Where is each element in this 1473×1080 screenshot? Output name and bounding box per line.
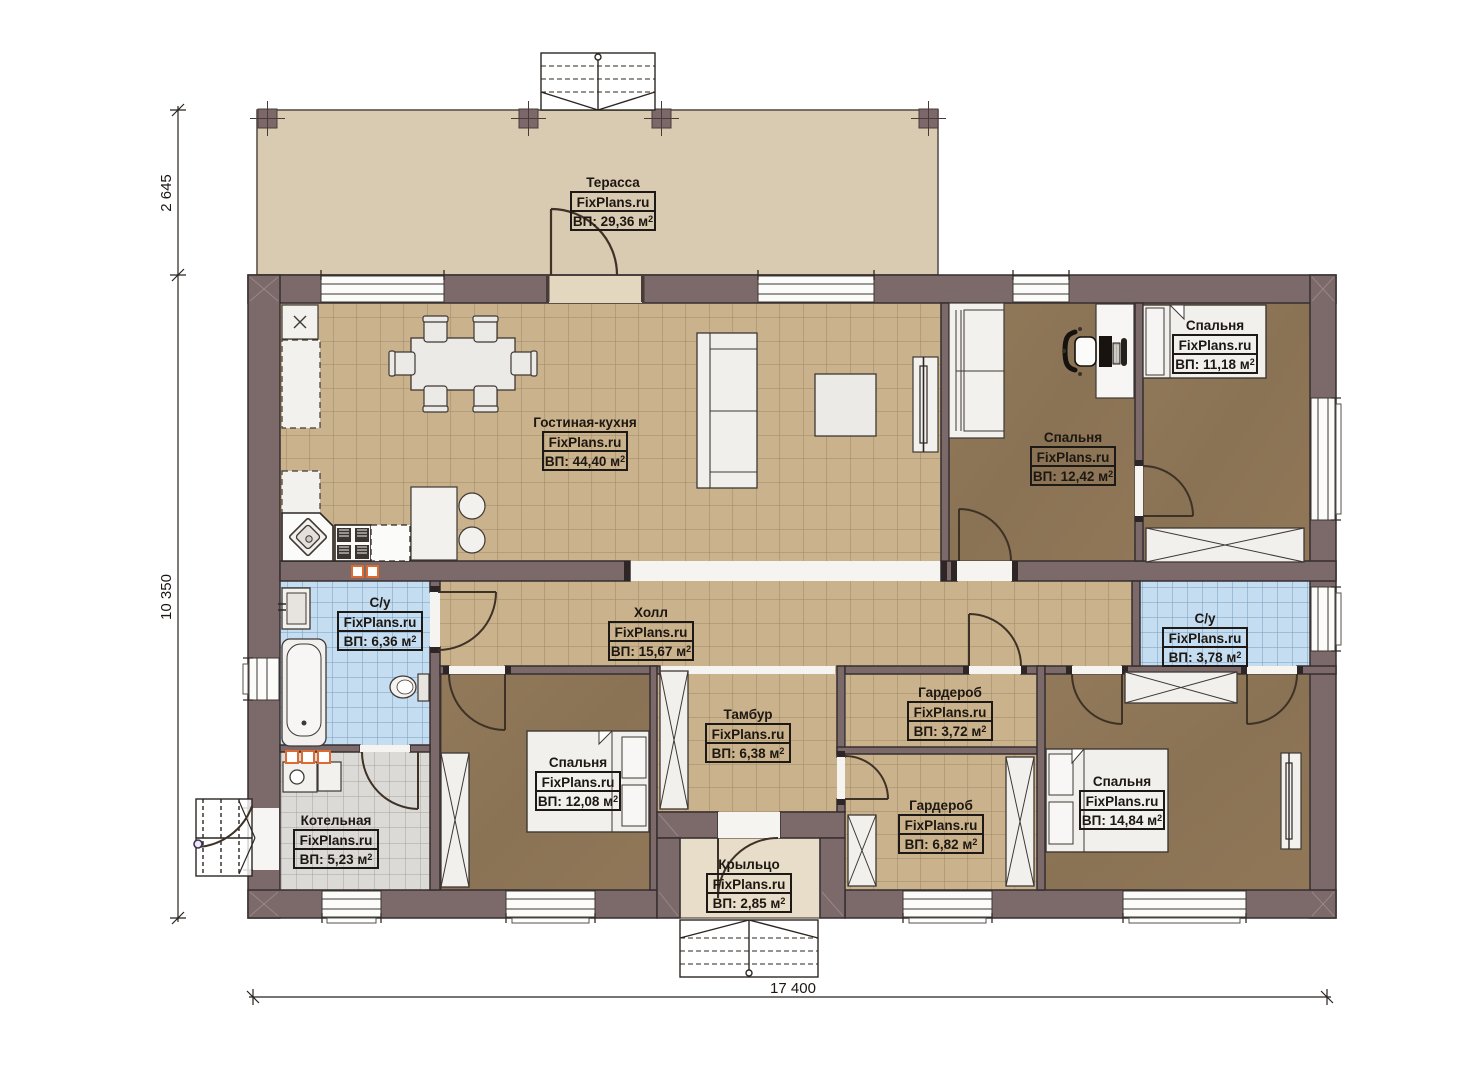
svg-text:Спальня: Спальня xyxy=(1093,774,1151,789)
svg-text:Спальня: Спальня xyxy=(1044,430,1102,445)
svg-text:10 350: 10 350 xyxy=(158,574,175,620)
svg-text:FixPlans.ru: FixPlans.ru xyxy=(1086,794,1159,809)
svg-text:С/у: С/у xyxy=(369,595,391,610)
svg-text:FixPlans.ru: FixPlans.ru xyxy=(905,818,978,833)
svg-text:ВП: 3,72 м2: ВП: 3,72 м2 xyxy=(914,724,987,739)
svg-text:17 400: 17 400 xyxy=(770,980,816,997)
svg-text:ВП: 3,78 м2: ВП: 3,78 м2 xyxy=(1169,650,1242,665)
svg-text:ВП: 12,08 м2: ВП: 12,08 м2 xyxy=(538,794,618,809)
svg-text:FixPlans.ru: FixPlans.ru xyxy=(713,877,786,892)
svg-text:С/у: С/у xyxy=(1194,611,1216,626)
svg-text:Спальня: Спальня xyxy=(1186,318,1244,333)
svg-text:FixPlans.ru: FixPlans.ru xyxy=(914,705,987,720)
svg-text:2 645: 2 645 xyxy=(158,174,175,212)
svg-text:Холл: Холл xyxy=(634,605,668,620)
svg-text:FixPlans.ru: FixPlans.ru xyxy=(344,615,417,630)
svg-text:ВП: 15,67 м2: ВП: 15,67 м2 xyxy=(611,644,691,659)
svg-text:ВП: 14,84 м2: ВП: 14,84 м2 xyxy=(1082,813,1162,828)
svg-text:Тамбур: Тамбур xyxy=(724,707,773,722)
svg-text:Гардероб: Гардероб xyxy=(909,798,973,813)
svg-text:ВП: 11,18 м2: ВП: 11,18 м2 xyxy=(1175,357,1255,372)
svg-text:FixPlans.ru: FixPlans.ru xyxy=(1169,631,1242,646)
svg-text:Гостиная-кухня: Гостиная-кухня xyxy=(533,415,636,430)
svg-text:FixPlans.ru: FixPlans.ru xyxy=(577,195,650,210)
svg-text:FixPlans.ru: FixPlans.ru xyxy=(542,775,615,790)
svg-text:Гардероб: Гардероб xyxy=(918,685,982,700)
svg-text:Крыльцо: Крыльцо xyxy=(718,857,779,872)
svg-text:FixPlans.ru: FixPlans.ru xyxy=(1179,338,1252,353)
svg-text:ВП: 12,42 м2: ВП: 12,42 м2 xyxy=(1033,469,1113,484)
svg-text:Терасса: Терасса xyxy=(586,175,640,190)
svg-text:ВП: 6,36 м2: ВП: 6,36 м2 xyxy=(344,634,417,649)
svg-text:ВП: 5,23 м2: ВП: 5,23 м2 xyxy=(300,852,373,867)
svg-text:Котельная: Котельная xyxy=(301,813,372,828)
svg-text:FixPlans.ru: FixPlans.ru xyxy=(712,727,785,742)
svg-text:ВП: 29,36 м2: ВП: 29,36 м2 xyxy=(573,214,653,229)
svg-text:FixPlans.ru: FixPlans.ru xyxy=(549,435,622,450)
svg-text:ВП: 2,85 м2: ВП: 2,85 м2 xyxy=(713,896,786,911)
svg-text:FixPlans.ru: FixPlans.ru xyxy=(300,833,373,848)
svg-text:FixPlans.ru: FixPlans.ru xyxy=(615,625,688,640)
svg-text:ВП: 6,82 м2: ВП: 6,82 м2 xyxy=(905,837,978,852)
svg-text:ВП: 6,38 м2: ВП: 6,38 м2 xyxy=(712,746,785,761)
svg-text:FixPlans.ru: FixPlans.ru xyxy=(1037,450,1110,465)
svg-text:Спальня: Спальня xyxy=(549,755,607,770)
svg-text:ВП: 44,40 м2: ВП: 44,40 м2 xyxy=(545,454,625,469)
